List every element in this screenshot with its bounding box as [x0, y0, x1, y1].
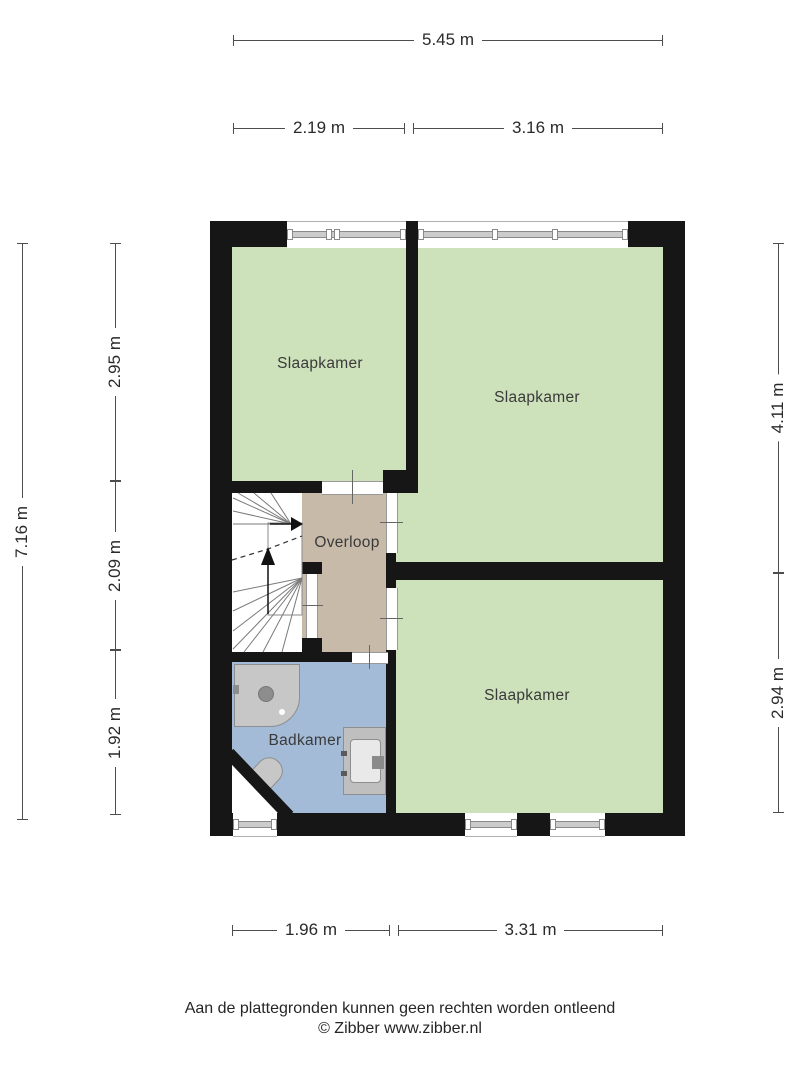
dimension-left-2: 2.09 m — [115, 481, 116, 650]
door-leaf-mark — [352, 470, 353, 504]
window-mullion — [511, 819, 517, 830]
interior-wall-bathroom-top — [388, 652, 396, 662]
window-glass — [287, 231, 406, 238]
exterior-wall-left — [210, 221, 232, 836]
window-mullion — [233, 819, 239, 830]
exterior-wall-right — [663, 221, 685, 836]
room-label-bathroom: Badkamer — [268, 732, 341, 750]
window-mullion — [326, 229, 332, 240]
floor-plan-page: 5.45 m 2.19 m 3.16 m 7.16 m 2.95 m 2.09 … — [0, 0, 800, 1067]
wall-stub-stairs — [302, 562, 322, 574]
exterior-wall-bottom — [517, 813, 550, 836]
shower-tap — [233, 685, 239, 694]
dimension-top-total: 5.45 m — [233, 40, 663, 41]
room-label-landing: Overloop — [314, 534, 379, 552]
railing-mark — [300, 605, 323, 606]
dimension-bottom-right: 3.31 m — [398, 930, 663, 931]
dimension-top-right: 3.16 m — [413, 128, 663, 129]
dimension-left-total: 7.16 m — [22, 243, 23, 820]
interior-wall-bathroom-top — [232, 652, 352, 662]
interior-wall-bedrooms-right — [396, 562, 663, 580]
window-mullion — [550, 819, 556, 830]
dimension-label: 5.45 m — [414, 30, 482, 50]
shower-drain — [258, 686, 274, 702]
dimension-label: 2.19 m — [285, 118, 353, 138]
door-leaf-mark — [380, 618, 403, 619]
window-glass — [550, 821, 605, 828]
vanity-handle — [341, 751, 347, 756]
wall-stub-stairs — [302, 638, 322, 652]
dimension-top-left: 2.19 m — [233, 128, 405, 129]
window-mullion — [552, 229, 558, 240]
window-mullion — [622, 229, 628, 240]
room-label-bedroom-bottom-right: Slaapkamer — [484, 687, 570, 705]
door-bathroom — [352, 652, 388, 664]
interior-wall-landing-top — [232, 481, 322, 493]
dimension-label: 3.16 m — [504, 118, 572, 138]
window-mullion — [492, 229, 498, 240]
dimension-left-1: 2.95 m — [115, 243, 116, 481]
window-mullion — [287, 229, 293, 240]
room-bedroom-top-right — [396, 493, 418, 562]
window-glass — [418, 231, 628, 238]
footer-credit: © Zibber www.zibber.nl — [0, 1020, 800, 1038]
interior-wall-landing-right — [386, 553, 396, 588]
door-bedroom-top-right — [386, 493, 398, 553]
door-leaf-mark — [380, 522, 403, 523]
window-glass — [465, 821, 517, 828]
window-mullion — [334, 229, 340, 240]
dimension-label: 3.31 m — [497, 920, 565, 940]
dimension-label: 1.96 m — [277, 920, 345, 940]
dimension-right-2: 2.94 m — [778, 573, 779, 813]
dimension-label: 4.11 m — [768, 375, 788, 442]
window-top-left — [287, 221, 406, 248]
interior-wall-landing-right — [386, 481, 396, 493]
door-leaf-mark — [369, 645, 370, 669]
exterior-wall-bottom — [605, 813, 685, 836]
exterior-wall-bottom — [210, 813, 233, 836]
room-label-bedroom-top-left: Slaapkamer — [277, 355, 363, 373]
vanity-handle — [341, 771, 347, 776]
exterior-wall-bottom — [277, 813, 465, 836]
dimension-label: 1.92 m — [105, 699, 125, 767]
footer-disclaimer: Aan de plattegronden kunnen geen rechten… — [0, 1000, 800, 1018]
dimension-right-1: 4.11 m — [778, 243, 779, 573]
window-bottom-bathroom — [233, 813, 277, 837]
dimension-label: 2.09 m — [105, 532, 125, 600]
exterior-wall-top — [628, 221, 685, 247]
window-bottom-bedroom-2 — [550, 813, 605, 837]
dimension-label: 2.94 m — [768, 659, 788, 727]
window-bottom-bedroom-1 — [465, 813, 517, 837]
door-bedroom-bottom-right — [386, 588, 398, 650]
interior-wall-bedrooms — [406, 247, 418, 493]
shower-dot — [279, 709, 285, 715]
stair-railing — [306, 574, 318, 638]
dimension-label: 2.95 m — [105, 328, 125, 396]
dimension-left-3: 1.92 m — [115, 650, 116, 815]
window-mullion — [418, 229, 424, 240]
sink-tap — [372, 756, 384, 769]
exterior-wall-top — [406, 221, 418, 247]
room-label-bedroom-top-right: Slaapkamer — [494, 389, 580, 407]
window-mullion — [599, 819, 605, 830]
window-mullion — [465, 819, 471, 830]
window-mullion — [271, 819, 277, 830]
interior-wall-bathroom-right — [386, 650, 396, 813]
window-mullion — [400, 229, 406, 240]
stairwell — [232, 493, 302, 652]
dimension-bottom-left: 1.96 m — [232, 930, 390, 931]
window-top-right — [418, 221, 628, 248]
dimension-label: 7.16 m — [12, 498, 32, 566]
exterior-wall-top — [210, 221, 287, 247]
